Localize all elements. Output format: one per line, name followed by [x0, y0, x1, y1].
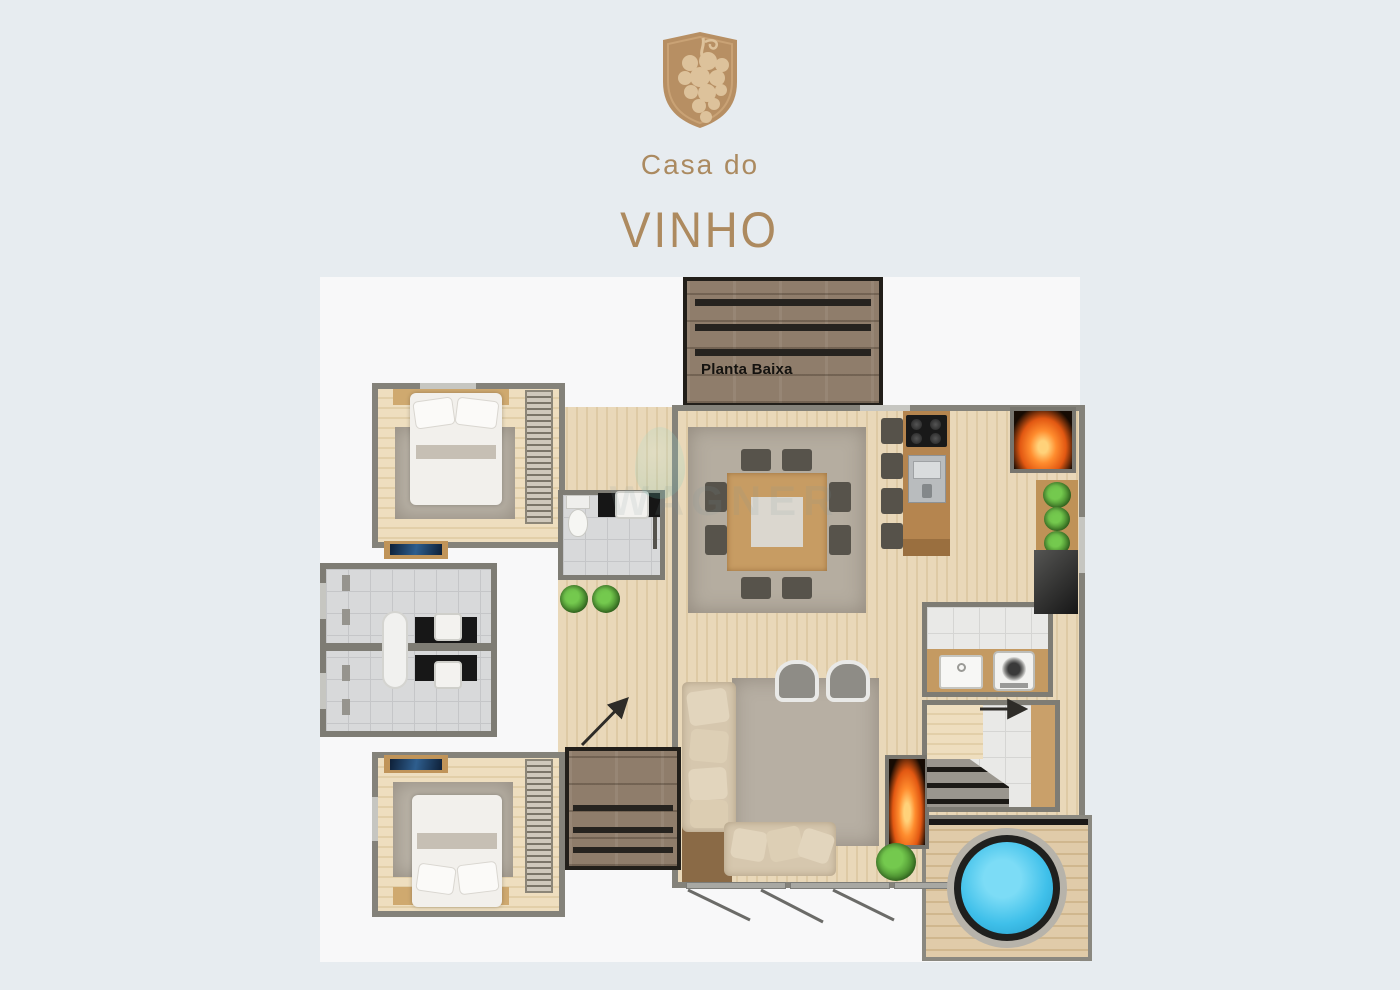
brand-header: Casa do VINHO: [450, 30, 950, 258]
fire-icon: [1014, 411, 1072, 469]
tv-stand: [384, 541, 448, 559]
burner: [930, 433, 941, 444]
cooktop: [906, 415, 947, 447]
shower-bench: [1031, 705, 1055, 807]
plant-icon: [1044, 507, 1070, 531]
bathtub: [382, 611, 408, 689]
window: [420, 383, 476, 389]
drain: [957, 663, 966, 672]
stair-tread: [573, 827, 673, 833]
sliding-door: [790, 882, 890, 889]
laundry-sink: [939, 655, 983, 689]
shower-fixture: [342, 609, 350, 625]
washer-door: [1002, 657, 1026, 681]
window: [1079, 517, 1085, 573]
bed-2: [412, 795, 502, 907]
sliding-door: [686, 882, 786, 889]
deck-step-line: [695, 324, 871, 331]
deck-step-line: [695, 349, 871, 356]
shower-fixture: [342, 699, 350, 715]
burner: [911, 433, 922, 444]
pillow: [412, 396, 456, 429]
stair-tread: [573, 847, 673, 853]
door-swing-line: [833, 890, 894, 920]
shower-room-wood-floor: [927, 705, 983, 759]
brand-name-top: Casa do: [450, 149, 950, 181]
dining-chair: [741, 577, 771, 599]
door-swing-line: [688, 890, 750, 920]
sofa-cushion: [688, 767, 728, 802]
wardrobe: [525, 759, 553, 893]
plan-title: Planta Baixa: [701, 361, 793, 378]
step-edge: [927, 799, 1009, 804]
step-edge: [927, 783, 1009, 788]
sofa-cushion: [689, 728, 730, 763]
fire-icon: [889, 759, 925, 845]
bathroom-divider-wall: [320, 643, 497, 651]
window: [320, 673, 326, 709]
tv-screen-icon: [390, 759, 442, 770]
lounge-chair: [775, 660, 819, 702]
shower-fixture: [342, 575, 350, 591]
stair-tread: [573, 805, 673, 811]
deck-step-line: [695, 299, 871, 306]
sink-basin: [913, 461, 941, 479]
pillow: [415, 862, 457, 895]
hot-tub-water: [961, 842, 1053, 934]
fireplace-living: [885, 755, 929, 849]
brand-name-main: VINHO: [621, 202, 780, 260]
dining-chair: [705, 525, 727, 555]
washer-controls: [1000, 683, 1028, 688]
dining-chair: [829, 525, 851, 555]
bathroom-sink: [434, 661, 462, 689]
entry-deck: Planta Baixa: [683, 277, 883, 407]
sofa-cushion: [690, 800, 728, 828]
grape-shield-icon: [659, 30, 741, 130]
door-swing-line: [761, 890, 823, 922]
dining-chair: [782, 449, 812, 471]
sofa-cushion: [730, 827, 769, 862]
bed-1: [410, 393, 502, 505]
pillow: [454, 397, 499, 430]
sofa-cushion: [796, 827, 836, 865]
window: [372, 797, 378, 841]
shower-fixture: [342, 665, 350, 681]
island-stool: [881, 453, 903, 479]
plant-icon: [560, 585, 588, 613]
blanket-fold: [416, 445, 496, 459]
dining-chair: [741, 449, 771, 471]
dining-chair: [782, 577, 812, 599]
lounge-chair: [826, 660, 870, 702]
window: [320, 583, 326, 619]
plant-icon: [592, 585, 620, 613]
floor-plan: Planta Baixa: [320, 277, 1080, 962]
sofa-cushion: [686, 687, 730, 726]
faucet: [922, 484, 932, 498]
washing-machine-icon: [993, 651, 1035, 691]
plant-icon: [1043, 482, 1071, 508]
fireplace-kitchen: [1010, 407, 1076, 473]
island-stool: [881, 418, 903, 444]
plant-icon: [876, 843, 916, 881]
storage-cabinet: [1034, 550, 1078, 614]
wardrobe: [525, 390, 553, 524]
island-stool: [881, 523, 903, 549]
window: [860, 405, 910, 411]
burner: [930, 419, 941, 430]
kitchen-sink: [908, 455, 946, 503]
sofa-section-horizontal: [724, 822, 836, 876]
burner: [911, 419, 922, 430]
deck-edge-beam: [926, 819, 1088, 825]
tv-stand: [384, 755, 448, 773]
living-rug: [732, 678, 879, 846]
kitchen-island-base: [903, 539, 950, 556]
sofa-section-vertical: [682, 682, 736, 832]
pillow: [456, 861, 499, 896]
blanket-fold: [417, 833, 497, 849]
watermark-text: WAGNER: [555, 477, 895, 525]
interior-stairs: [565, 747, 681, 870]
tv-screen-icon: [390, 544, 442, 555]
bathroom-sink: [434, 613, 462, 641]
